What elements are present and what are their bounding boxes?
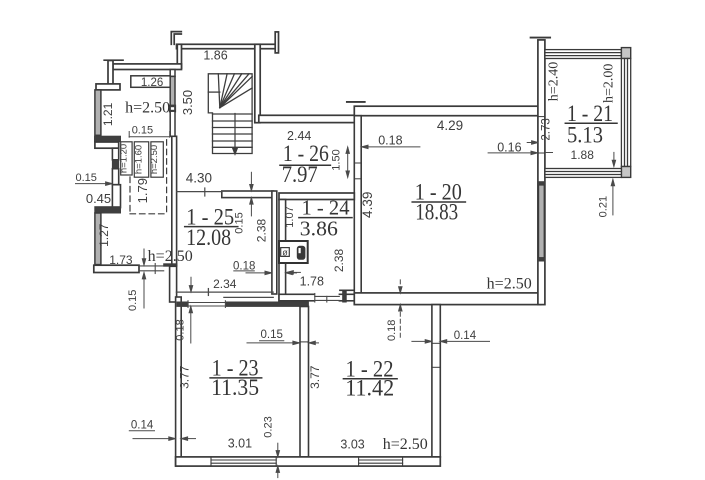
svg-text:0.15: 0.15 [132, 125, 153, 137]
svg-text:3.03: 3.03 [340, 437, 364, 451]
svg-text:0.21: 0.21 [598, 196, 610, 217]
svg-text:4.29: 4.29 [437, 118, 463, 133]
svg-text:h=2.50: h=2.50 [487, 276, 532, 293]
svg-text:h=2.00: h=2.00 [602, 64, 617, 103]
svg-text:2.73: 2.73 [541, 118, 553, 140]
svg-text:ø: ø [282, 248, 288, 258]
svg-text:h=2.50: h=2.50 [125, 100, 170, 117]
svg-text:4.39: 4.39 [360, 192, 375, 218]
svg-text:h=1.60: h=1.60 [134, 145, 145, 174]
svg-text:3.77: 3.77 [308, 365, 322, 389]
svg-text:4.30: 4.30 [186, 171, 212, 186]
svg-text:1.79: 1.79 [135, 178, 150, 203]
svg-text:h=2.50: h=2.50 [383, 436, 428, 453]
svg-text:1.27: 1.27 [97, 223, 111, 247]
svg-text:3.01: 3.01 [228, 437, 252, 451]
svg-text:h=2.40: h=2.40 [547, 62, 562, 101]
svg-text:0.18: 0.18 [386, 320, 398, 341]
svg-text:0.15: 0.15 [261, 329, 283, 341]
svg-text:1.78: 1.78 [300, 275, 324, 289]
svg-text:11.35: 11.35 [211, 375, 259, 401]
svg-text:1.86: 1.86 [203, 48, 227, 62]
svg-text:1.21: 1.21 [101, 102, 115, 126]
svg-text:0.14: 0.14 [454, 330, 477, 342]
svg-text:2.38: 2.38 [255, 218, 269, 242]
svg-text:7.97: 7.97 [282, 162, 318, 188]
svg-text:1.26: 1.26 [141, 77, 163, 89]
svg-text:2.38: 2.38 [332, 248, 346, 272]
svg-text:h=2.50: h=2.50 [149, 145, 160, 174]
svg-text:0.18: 0.18 [174, 319, 186, 340]
svg-text:18.83: 18.83 [415, 200, 458, 226]
svg-text:1.73: 1.73 [109, 253, 133, 267]
svg-text:h=1.20: h=1.20 [118, 144, 129, 173]
svg-text:0.18: 0.18 [233, 260, 255, 272]
svg-text:5.13: 5.13 [567, 123, 603, 148]
svg-text:3.50: 3.50 [180, 90, 195, 115]
svg-text:11.42: 11.42 [345, 376, 394, 402]
svg-text:0.23: 0.23 [263, 416, 275, 437]
svg-text:12.08: 12.08 [186, 225, 231, 251]
svg-text:0.14: 0.14 [131, 420, 154, 432]
svg-text:1.50: 1.50 [330, 149, 342, 170]
svg-text:3.86: 3.86 [300, 217, 338, 241]
svg-text:1.07: 1.07 [284, 206, 296, 227]
svg-text:0.15: 0.15 [233, 212, 245, 233]
svg-text:0.15: 0.15 [127, 290, 139, 311]
svg-text:0.15: 0.15 [75, 172, 96, 184]
svg-text:0.16: 0.16 [497, 140, 521, 154]
svg-text:2.34: 2.34 [213, 277, 237, 291]
svg-text:0.45: 0.45 [86, 191, 111, 206]
svg-text:3.77: 3.77 [178, 365, 192, 389]
svg-text:0.18: 0.18 [378, 134, 402, 148]
svg-text:1.88: 1.88 [571, 148, 595, 162]
